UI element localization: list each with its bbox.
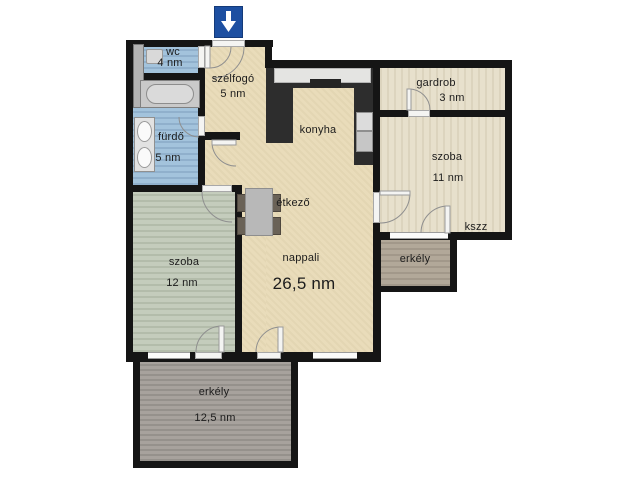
szelfogo-area: 5 nm <box>220 88 245 100</box>
room11-balcony-door <box>390 232 448 239</box>
szoba12-area: 12 nm <box>166 277 198 289</box>
wall-bath-room12-a <box>126 185 200 192</box>
dining-table <box>245 188 273 236</box>
wall-living-right-lower <box>373 240 381 362</box>
konyha-label: konyha <box>300 124 337 136</box>
szelfogo-label: szélfogó <box>212 73 255 85</box>
etkezo-label: étkező <box>276 197 310 209</box>
entrance-door-sill <box>212 40 245 47</box>
bath-door-sill <box>198 116 205 136</box>
erkely-bottom-area: 12,5 nm <box>194 412 235 424</box>
wall-top-right <box>266 60 512 68</box>
dining-chair-4 <box>272 217 281 235</box>
bathtub-basin <box>146 84 194 104</box>
wall-hall-right <box>265 40 272 68</box>
room12-floor <box>133 192 235 352</box>
szoba11-label: szoba <box>432 151 462 163</box>
room11-door-sill <box>373 192 380 223</box>
wc-area: 4 nm <box>157 57 182 69</box>
wall-wardrobe-room11-b <box>430 110 512 117</box>
wall-wardrobe-room11-a <box>380 110 408 117</box>
hall-floor <box>205 47 266 192</box>
wall-left <box>126 40 133 362</box>
wall-balcony-bottom-east <box>291 352 298 468</box>
window-room12 <box>148 352 190 359</box>
kszz-label: kszz <box>465 221 488 233</box>
wall-wc-hall-c <box>198 136 205 192</box>
furdo-area: 5 nm <box>155 152 180 164</box>
szoba11-area: 11 nm <box>433 172 464 184</box>
wall-living-room11-b <box>373 223 380 232</box>
bath-sink-2 <box>137 147 152 168</box>
nappali-label: nappali <box>283 252 320 264</box>
bath-sink-1 <box>137 121 152 142</box>
wall-balcony-bottom-south <box>133 461 298 468</box>
wall-balcony-bottom-west <box>133 352 140 468</box>
entrance-arrow <box>214 6 243 38</box>
wall-bath-room12-b <box>232 185 242 192</box>
kitchen-sink-basin <box>356 131 373 152</box>
erkely-right-label: erkély <box>400 253 431 265</box>
wall-balcony-right-east <box>450 232 457 292</box>
room12-balcony-door-sill <box>195 352 222 359</box>
wall-balcony-right-south <box>378 286 457 292</box>
wardrobe-door-sill <box>408 110 430 117</box>
erkely-bottom-label: erkély <box>199 386 230 398</box>
down-arrow-icon <box>215 7 242 37</box>
cooktop <box>310 79 341 88</box>
floor-plan: wc 4 nm szélfogó 5 nm fürdő 5 nm konyha … <box>0 0 640 480</box>
kitchen-counter-left <box>266 84 293 143</box>
living-balcony-door-sill <box>257 352 281 359</box>
szoba12-label: szoba <box>169 256 199 268</box>
room12-door-sill <box>202 185 232 192</box>
wall-room12-living <box>235 192 242 352</box>
wall-right <box>505 60 512 240</box>
window-living <box>313 352 357 359</box>
gardrob-area: 3 nm <box>439 92 464 104</box>
kitchen-sink-unit <box>356 112 373 131</box>
wc-door-sill <box>198 46 205 68</box>
gardrob-label: gardrob <box>416 77 455 89</box>
furdo-label: fürdő <box>158 131 184 143</box>
wall-living-room11-a <box>373 60 380 192</box>
nappali-area: 26,5 nm <box>273 274 336 294</box>
wall-hall-stub <box>205 132 240 140</box>
